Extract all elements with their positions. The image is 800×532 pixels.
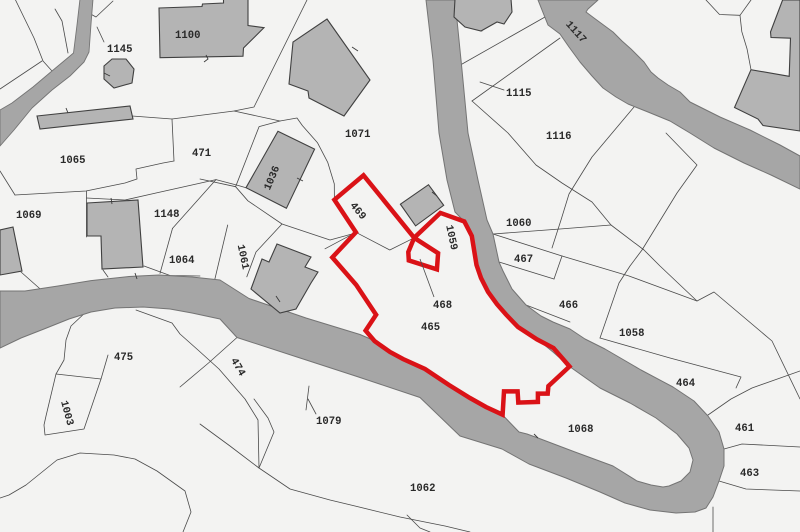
svg-text:475: 475 — [114, 352, 133, 364]
svg-text:464: 464 — [676, 378, 696, 390]
svg-text:461: 461 — [735, 423, 754, 435]
svg-text:1065: 1065 — [60, 155, 85, 167]
svg-text:1100: 1100 — [175, 30, 200, 42]
svg-text:1060: 1060 — [506, 218, 531, 230]
svg-text:1071: 1071 — [345, 129, 370, 141]
svg-text:466: 466 — [559, 300, 578, 312]
svg-text:1062: 1062 — [410, 483, 435, 495]
svg-text:1148: 1148 — [154, 209, 179, 221]
svg-text:1068: 1068 — [568, 424, 593, 436]
svg-text:471: 471 — [192, 148, 211, 160]
svg-text:1069: 1069 — [16, 210, 41, 222]
svg-text:1115: 1115 — [506, 88, 531, 100]
svg-text:463: 463 — [740, 468, 759, 480]
svg-text:465: 465 — [421, 322, 440, 334]
svg-text:468: 468 — [433, 300, 452, 312]
svg-text:1145: 1145 — [107, 44, 132, 56]
svg-text:467: 467 — [514, 254, 533, 266]
svg-text:1079: 1079 — [316, 416, 341, 428]
svg-text:1064: 1064 — [169, 255, 195, 267]
svg-text:1116: 1116 — [546, 131, 571, 143]
svg-text:1058: 1058 — [619, 328, 644, 340]
